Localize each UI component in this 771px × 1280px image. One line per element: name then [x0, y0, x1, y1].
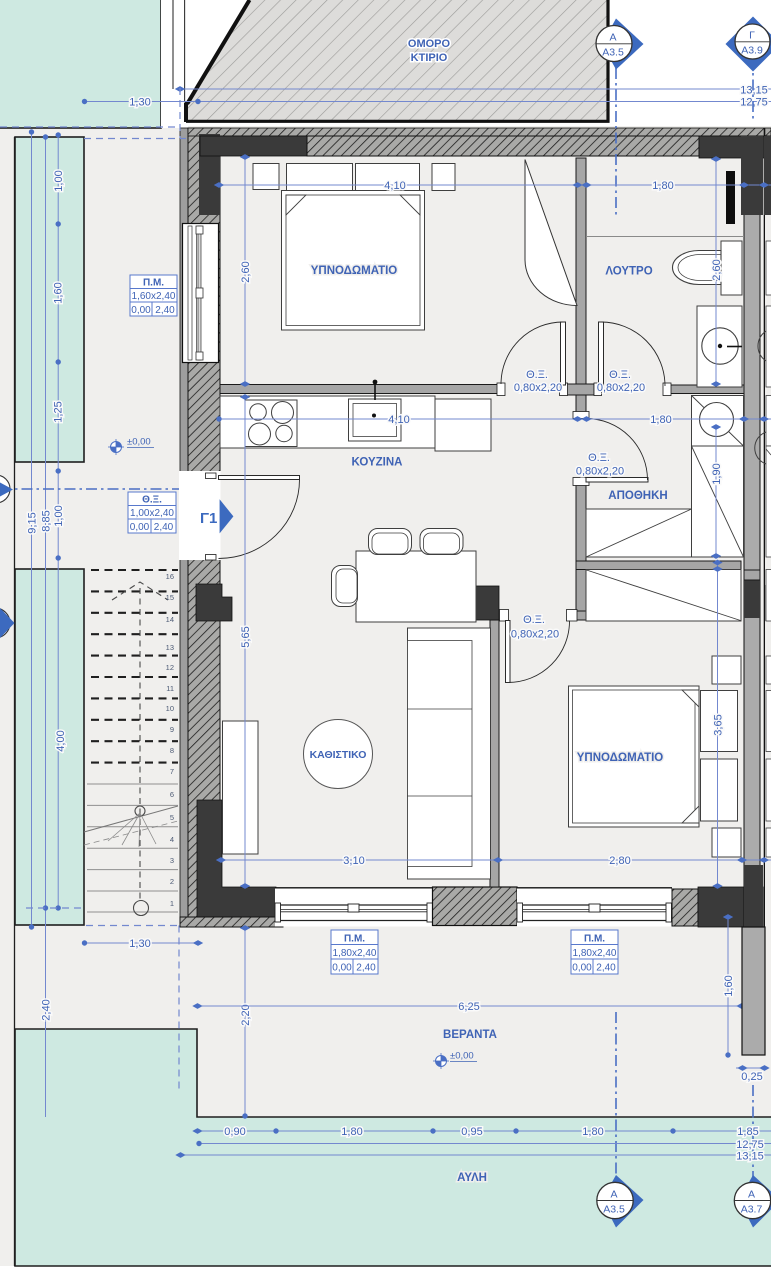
svg-text:5: 5 — [170, 813, 174, 822]
svg-text:0,95: 0,95 — [461, 1126, 482, 1138]
svg-text:6,25: 6,25 — [458, 1001, 479, 1013]
svg-text:2,40: 2,40 — [596, 963, 616, 974]
svg-text:2,60: 2,60 — [711, 259, 723, 280]
svg-text:A3.9: A3.9 — [741, 45, 763, 57]
svg-text:Θ.Ξ.: Θ.Ξ. — [142, 495, 162, 506]
svg-text:1,80: 1,80 — [341, 1126, 362, 1138]
svg-text:1,80: 1,80 — [582, 1126, 603, 1138]
svg-text:0,00: 0,00 — [131, 305, 151, 316]
svg-text:1,80: 1,80 — [652, 180, 673, 192]
svg-text:Γ1: Γ1 — [200, 510, 217, 527]
svg-text:ΛΟΥΤΡΟ: ΛΟΥΤΡΟ — [605, 266, 652, 278]
svg-text:4,10: 4,10 — [384, 180, 405, 192]
svg-text:11: 11 — [166, 684, 174, 693]
svg-text:Θ.Ξ.: Θ.Ξ. — [588, 452, 610, 464]
svg-text:2,40: 2,40 — [41, 999, 53, 1020]
svg-text:1,60: 1,60 — [53, 282, 65, 303]
svg-text:ΚΟΥΖΙΝΑ: ΚΟΥΖΙΝΑ — [352, 457, 403, 469]
svg-text:A3.7: A3.7 — [741, 1204, 763, 1216]
svg-text:1,80x2,40: 1,80x2,40 — [333, 948, 377, 959]
svg-text:10: 10 — [166, 704, 174, 713]
svg-text:1,80: 1,80 — [650, 414, 671, 426]
svg-text:0,90: 0,90 — [224, 1126, 245, 1138]
svg-text:0,00: 0,00 — [130, 522, 150, 533]
svg-text:1,80x2,40: 1,80x2,40 — [573, 948, 617, 959]
svg-text:9: 9 — [170, 725, 174, 734]
svg-text:4,00: 4,00 — [55, 730, 67, 751]
svg-text:1,30: 1,30 — [129, 938, 150, 950]
svg-text:2,40: 2,40 — [154, 522, 174, 533]
svg-text:Π.Μ.: Π.Μ. — [344, 934, 365, 945]
svg-text:2,40: 2,40 — [155, 305, 175, 316]
svg-text:6: 6 — [170, 790, 174, 799]
svg-text:4: 4 — [170, 835, 174, 844]
svg-text:14: 14 — [166, 615, 174, 624]
svg-text:1,60: 1,60 — [723, 975, 735, 996]
svg-text:9,15: 9,15 — [27, 512, 39, 533]
svg-text:Θ.Ξ.: Θ.Ξ. — [526, 369, 548, 381]
svg-text:15: 15 — [166, 593, 174, 602]
svg-text:5,65: 5,65 — [240, 626, 252, 647]
svg-text:13,15: 13,15 — [740, 85, 768, 97]
svg-text:1,00x2,40: 1,00x2,40 — [130, 508, 174, 519]
svg-text:ΚΤΙΡΙΟ: ΚΤΙΡΙΟ — [411, 52, 448, 64]
svg-text:ΑΠΟΘΗΚΗ: ΑΠΟΘΗΚΗ — [608, 490, 667, 502]
svg-text:3: 3 — [170, 856, 174, 865]
svg-text:8,85: 8,85 — [41, 510, 53, 531]
svg-text:3,65: 3,65 — [713, 714, 725, 735]
svg-text:A: A — [610, 1189, 617, 1201]
svg-text:A: A — [748, 1189, 755, 1201]
svg-text:ΟΜΟΡΟ: ΟΜΟΡΟ — [408, 38, 451, 50]
svg-text:0,80x2,20: 0,80x2,20 — [597, 382, 645, 394]
svg-text:ΥΠΝΟΔΩΜΑΤΙΟ: ΥΠΝΟΔΩΜΑΤΙΟ — [577, 752, 664, 764]
svg-text:2,80: 2,80 — [609, 855, 630, 867]
svg-text:Π.Μ.: Π.Μ. — [584, 934, 605, 945]
svg-text:0,00: 0,00 — [332, 963, 352, 974]
svg-text:1,00: 1,00 — [53, 170, 65, 191]
svg-text:1,30: 1,30 — [129, 97, 150, 109]
svg-text:Θ.Ξ.: Θ.Ξ. — [609, 369, 631, 381]
svg-text:1,25: 1,25 — [53, 401, 65, 422]
svg-text:A3.5: A3.5 — [603, 1204, 625, 1216]
svg-text:0,80x2,20: 0,80x2,20 — [511, 629, 559, 641]
svg-text:12: 12 — [166, 663, 174, 672]
svg-text:3,10: 3,10 — [343, 855, 364, 867]
svg-text:2,60: 2,60 — [240, 261, 252, 282]
svg-text:0,25: 0,25 — [741, 1071, 762, 1083]
svg-text:1: 1 — [170, 899, 174, 908]
svg-text:0,80x2,20: 0,80x2,20 — [576, 466, 624, 478]
svg-text:16: 16 — [166, 572, 174, 581]
svg-text:ΚΑΘΙΣΤΙΚΟ: ΚΑΘΙΣΤΙΚΟ — [310, 749, 367, 761]
svg-text:8: 8 — [170, 746, 174, 755]
svg-text:4,10: 4,10 — [388, 414, 409, 426]
svg-text:±0,00: ±0,00 — [450, 1051, 474, 1062]
svg-text:Γ: Γ — [749, 30, 755, 42]
svg-text:1,90: 1,90 — [711, 463, 723, 484]
svg-text:ΥΠΝΟΔΩΜΑΤΙΟ: ΥΠΝΟΔΩΜΑΤΙΟ — [311, 265, 398, 277]
svg-text:2,20: 2,20 — [240, 1004, 252, 1025]
svg-text:Θ.Ξ.: Θ.Ξ. — [523, 614, 545, 626]
svg-text:13: 13 — [166, 643, 174, 652]
svg-text:12,75: 12,75 — [740, 97, 768, 109]
svg-text:2,40: 2,40 — [356, 963, 376, 974]
svg-text:2: 2 — [170, 877, 174, 886]
svg-text:±0,00: ±0,00 — [127, 437, 151, 448]
svg-text:A: A — [609, 32, 616, 44]
svg-text:0,80x2,20: 0,80x2,20 — [514, 382, 562, 394]
svg-text:13,15: 13,15 — [736, 1151, 764, 1163]
svg-text:7: 7 — [170, 767, 174, 776]
svg-text:1,60x2,40: 1,60x2,40 — [132, 291, 176, 302]
svg-text:12,75: 12,75 — [736, 1139, 764, 1151]
svg-text:1,85: 1,85 — [737, 1126, 758, 1138]
svg-text:0,00: 0,00 — [572, 963, 592, 974]
svg-text:ΒΕΡΑΝΤΑ: ΒΕΡΑΝΤΑ — [443, 1029, 497, 1041]
svg-text:Π.Μ.: Π.Μ. — [143, 278, 164, 289]
svg-text:A3.5: A3.5 — [602, 47, 624, 59]
svg-text:1,00: 1,00 — [53, 505, 65, 526]
svg-text:ΑΥΛΗ: ΑΥΛΗ — [457, 1172, 487, 1184]
